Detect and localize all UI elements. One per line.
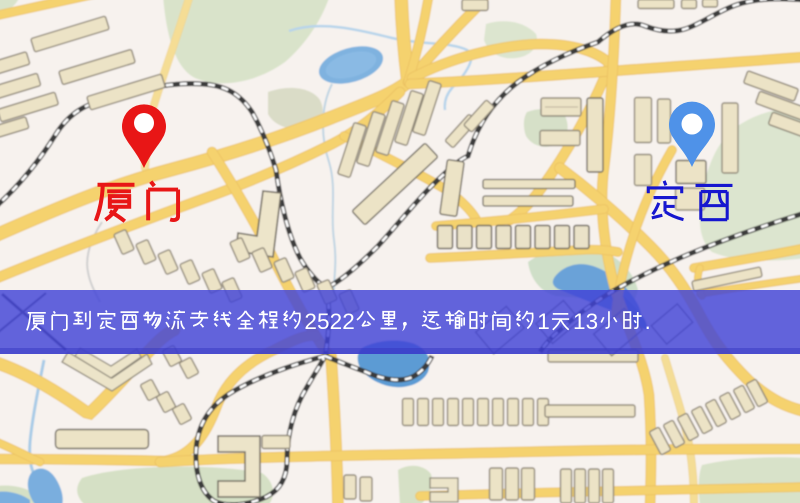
svg-text:2: 2 bbox=[304, 309, 317, 334]
svg-text:3: 3 bbox=[586, 309, 599, 334]
svg-text:2: 2 bbox=[342, 309, 355, 334]
svg-text:.: . bbox=[645, 309, 651, 334]
svg-text:2: 2 bbox=[330, 309, 343, 334]
svg-text:5: 5 bbox=[317, 309, 330, 334]
svg-text:1: 1 bbox=[537, 309, 550, 334]
svg-text:1: 1 bbox=[573, 309, 586, 334]
